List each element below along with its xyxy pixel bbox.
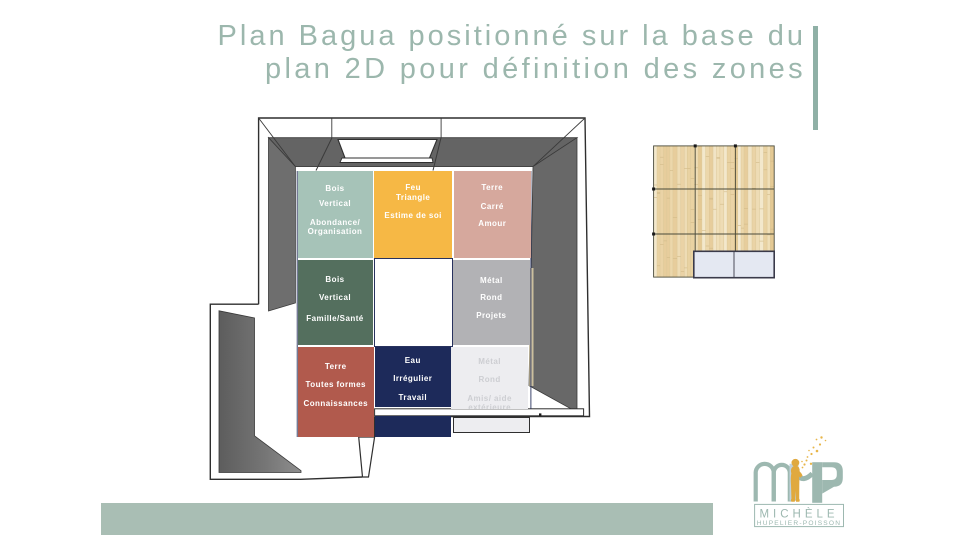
svg-text:HUPELIER-POISSON: HUPELIER-POISSON [757, 520, 841, 527]
svg-text:MICHÈLE: MICHÈLE [759, 508, 838, 521]
